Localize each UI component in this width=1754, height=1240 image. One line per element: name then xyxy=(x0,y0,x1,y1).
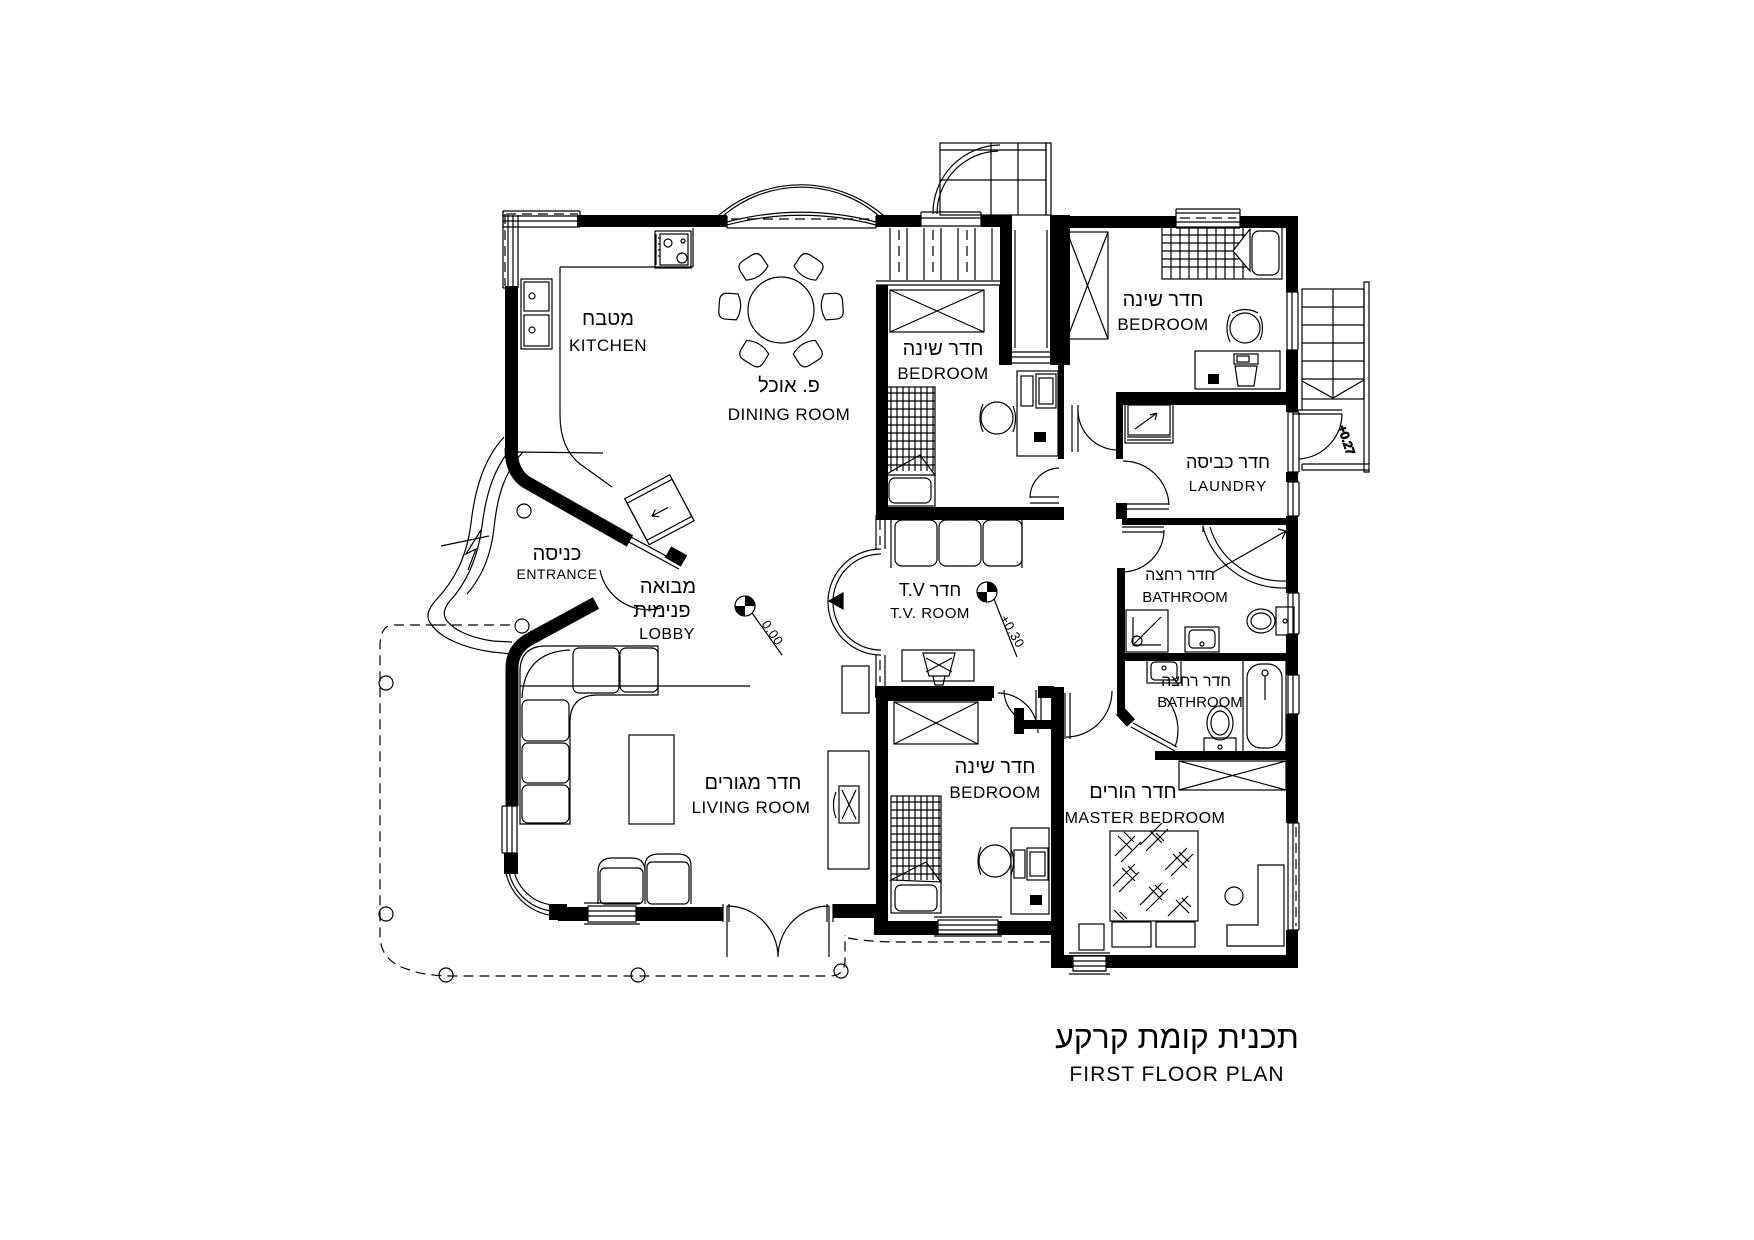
svg-text:LOBBY: LOBBY xyxy=(639,626,695,643)
svg-text:תכנית קומת קרקע: תכנית קומת קרקע xyxy=(1055,1019,1299,1055)
svg-text:ENTRANCE: ENTRANCE xyxy=(516,566,597,582)
svg-text:FIRST FLOOR PLAN: FIRST FLOOR PLAN xyxy=(1069,1063,1284,1086)
svg-text:מטבח: מטבח xyxy=(582,308,634,330)
svg-text:BEDROOM: BEDROOM xyxy=(949,783,1040,802)
svg-text:כניסה: כניסה xyxy=(533,543,582,565)
svg-text:חדר הורים: חדר הורים xyxy=(1089,781,1176,803)
svg-text:LAUNDRY: LAUNDRY xyxy=(1189,478,1267,495)
svg-text:חדר מגורים: חדר מגורים xyxy=(705,772,802,794)
svg-text:חדר שינה: חדר שינה xyxy=(903,338,984,360)
svg-text:BATHROOM: BATHROOM xyxy=(1142,589,1228,606)
svg-text:חדר כביסה: חדר כביסה xyxy=(1186,452,1270,472)
svg-text:KITCHEN: KITCHEN xyxy=(569,336,647,355)
svg-text:חדר שינה: חדר שינה xyxy=(955,756,1036,778)
svg-text:פנימית: פנימית xyxy=(633,600,690,622)
svg-text:DINING ROOM: DINING ROOM xyxy=(728,405,851,424)
svg-text:LIVING ROOM: LIVING ROOM xyxy=(692,798,811,817)
svg-text:T.V. ROOM: T.V. ROOM xyxy=(890,605,970,622)
svg-text:T.V חדר: T.V חדר xyxy=(899,580,961,600)
svg-text:פ. אוכל: פ. אוכל xyxy=(758,375,820,397)
svg-text:חדר רחצה: חדר רחצה xyxy=(1145,567,1215,584)
svg-text:MASTER BEDROOM: MASTER BEDROOM xyxy=(1065,810,1226,827)
svg-text:חדר רחצה: חדר רחצה xyxy=(1161,673,1231,690)
svg-text:BATHROOM: BATHROOM xyxy=(1157,694,1243,711)
svg-text:BEDROOM: BEDROOM xyxy=(897,364,988,383)
svg-text:BEDROOM: BEDROOM xyxy=(1117,315,1208,334)
svg-text:חדר שינה: חדר שינה xyxy=(1123,289,1204,311)
svg-text:מבואה: מבואה xyxy=(640,576,696,598)
